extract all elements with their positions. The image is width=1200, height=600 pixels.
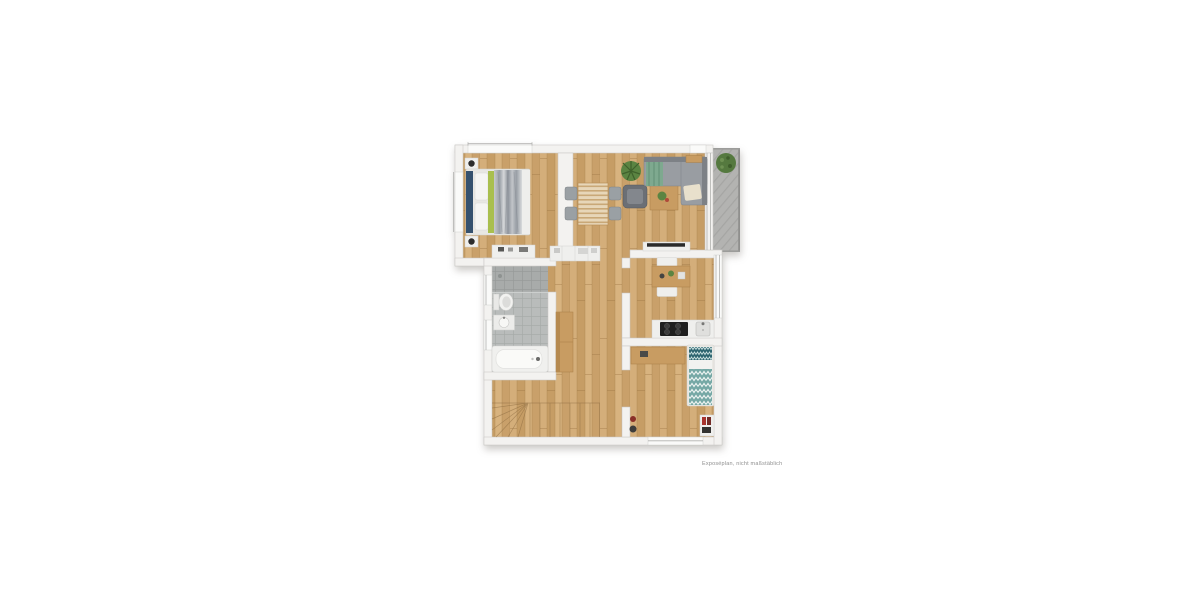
plant-pot-red — [630, 416, 636, 422]
pillow — [475, 173, 488, 200]
dining-chair — [565, 207, 577, 220]
tv-lowboard — [643, 242, 690, 251]
wall-kitchen-left-b — [622, 293, 630, 338]
shower-area — [492, 266, 548, 292]
bedroom-dresser — [492, 245, 535, 258]
floor-plan — [450, 136, 750, 456]
pillow — [475, 203, 488, 230]
kitchen-chair — [657, 287, 677, 297]
bed-duvet — [494, 170, 522, 234]
nightstand-top — [465, 158, 478, 169]
window-bedroom-top — [468, 145, 532, 153]
sofa-side-tray — [686, 156, 702, 163]
hall-wardrobe — [556, 312, 573, 372]
window-hall-left — [484, 320, 492, 350]
wall-smallbedroom-left-a — [622, 346, 630, 370]
balcony-railing — [738, 148, 740, 252]
single-bed-duvet — [689, 369, 712, 405]
single-bed-sheet — [689, 360, 712, 369]
balcony-furniture — [716, 153, 736, 173]
cooktop — [660, 322, 688, 336]
wall-bathroom-right — [548, 292, 556, 372]
bed-headboard — [466, 171, 473, 233]
dining-chair — [609, 207, 621, 220]
bed-foot-sheet — [522, 170, 530, 234]
sofa-green-throw — [646, 162, 663, 186]
bookshelf — [700, 415, 714, 436]
balcony-door-top — [690, 145, 706, 153]
wall-smallbedroom-left-b — [622, 407, 630, 437]
balcony-plant — [716, 153, 736, 173]
balcony-railing-top — [713, 148, 740, 150]
dining-chair — [565, 187, 577, 200]
armchair — [623, 185, 647, 208]
page-canvas: Exposéplan, nicht maßstäblich — [0, 0, 1200, 600]
disclaimer-text: Exposéplan, nicht maßstäblich — [702, 462, 792, 468]
wall-kitchen-left-a — [622, 258, 630, 268]
plant-pot-dark — [630, 426, 637, 433]
tv — [647, 243, 685, 247]
desk — [631, 347, 685, 364]
wall-bathroom-top — [484, 258, 556, 266]
coffee-table — [650, 185, 678, 210]
single-bed-pillow — [689, 347, 712, 360]
toilet — [494, 294, 514, 311]
floor-plan-svg — [450, 136, 750, 456]
window-bedroom-left — [455, 172, 463, 232]
kitchen-sink — [696, 322, 710, 336]
window-bathroom-left — [484, 275, 492, 305]
wall-bedroom-living-divider — [558, 153, 573, 248]
wall-bathroom-bottom — [484, 372, 556, 380]
single-bed — [687, 345, 714, 406]
washbasin — [494, 315, 515, 330]
hall-cabinet — [550, 246, 600, 261]
bathtub — [492, 346, 548, 372]
potted-plant — [621, 161, 641, 181]
kitchen-counter — [652, 320, 714, 338]
double-bed — [466, 169, 530, 235]
dining-chair — [609, 187, 621, 200]
sofa-cream-blanket — [683, 184, 702, 201]
nightstand-bottom — [465, 236, 478, 247]
window-kitchen-right — [714, 255, 722, 318]
shower-drain — [498, 274, 502, 278]
